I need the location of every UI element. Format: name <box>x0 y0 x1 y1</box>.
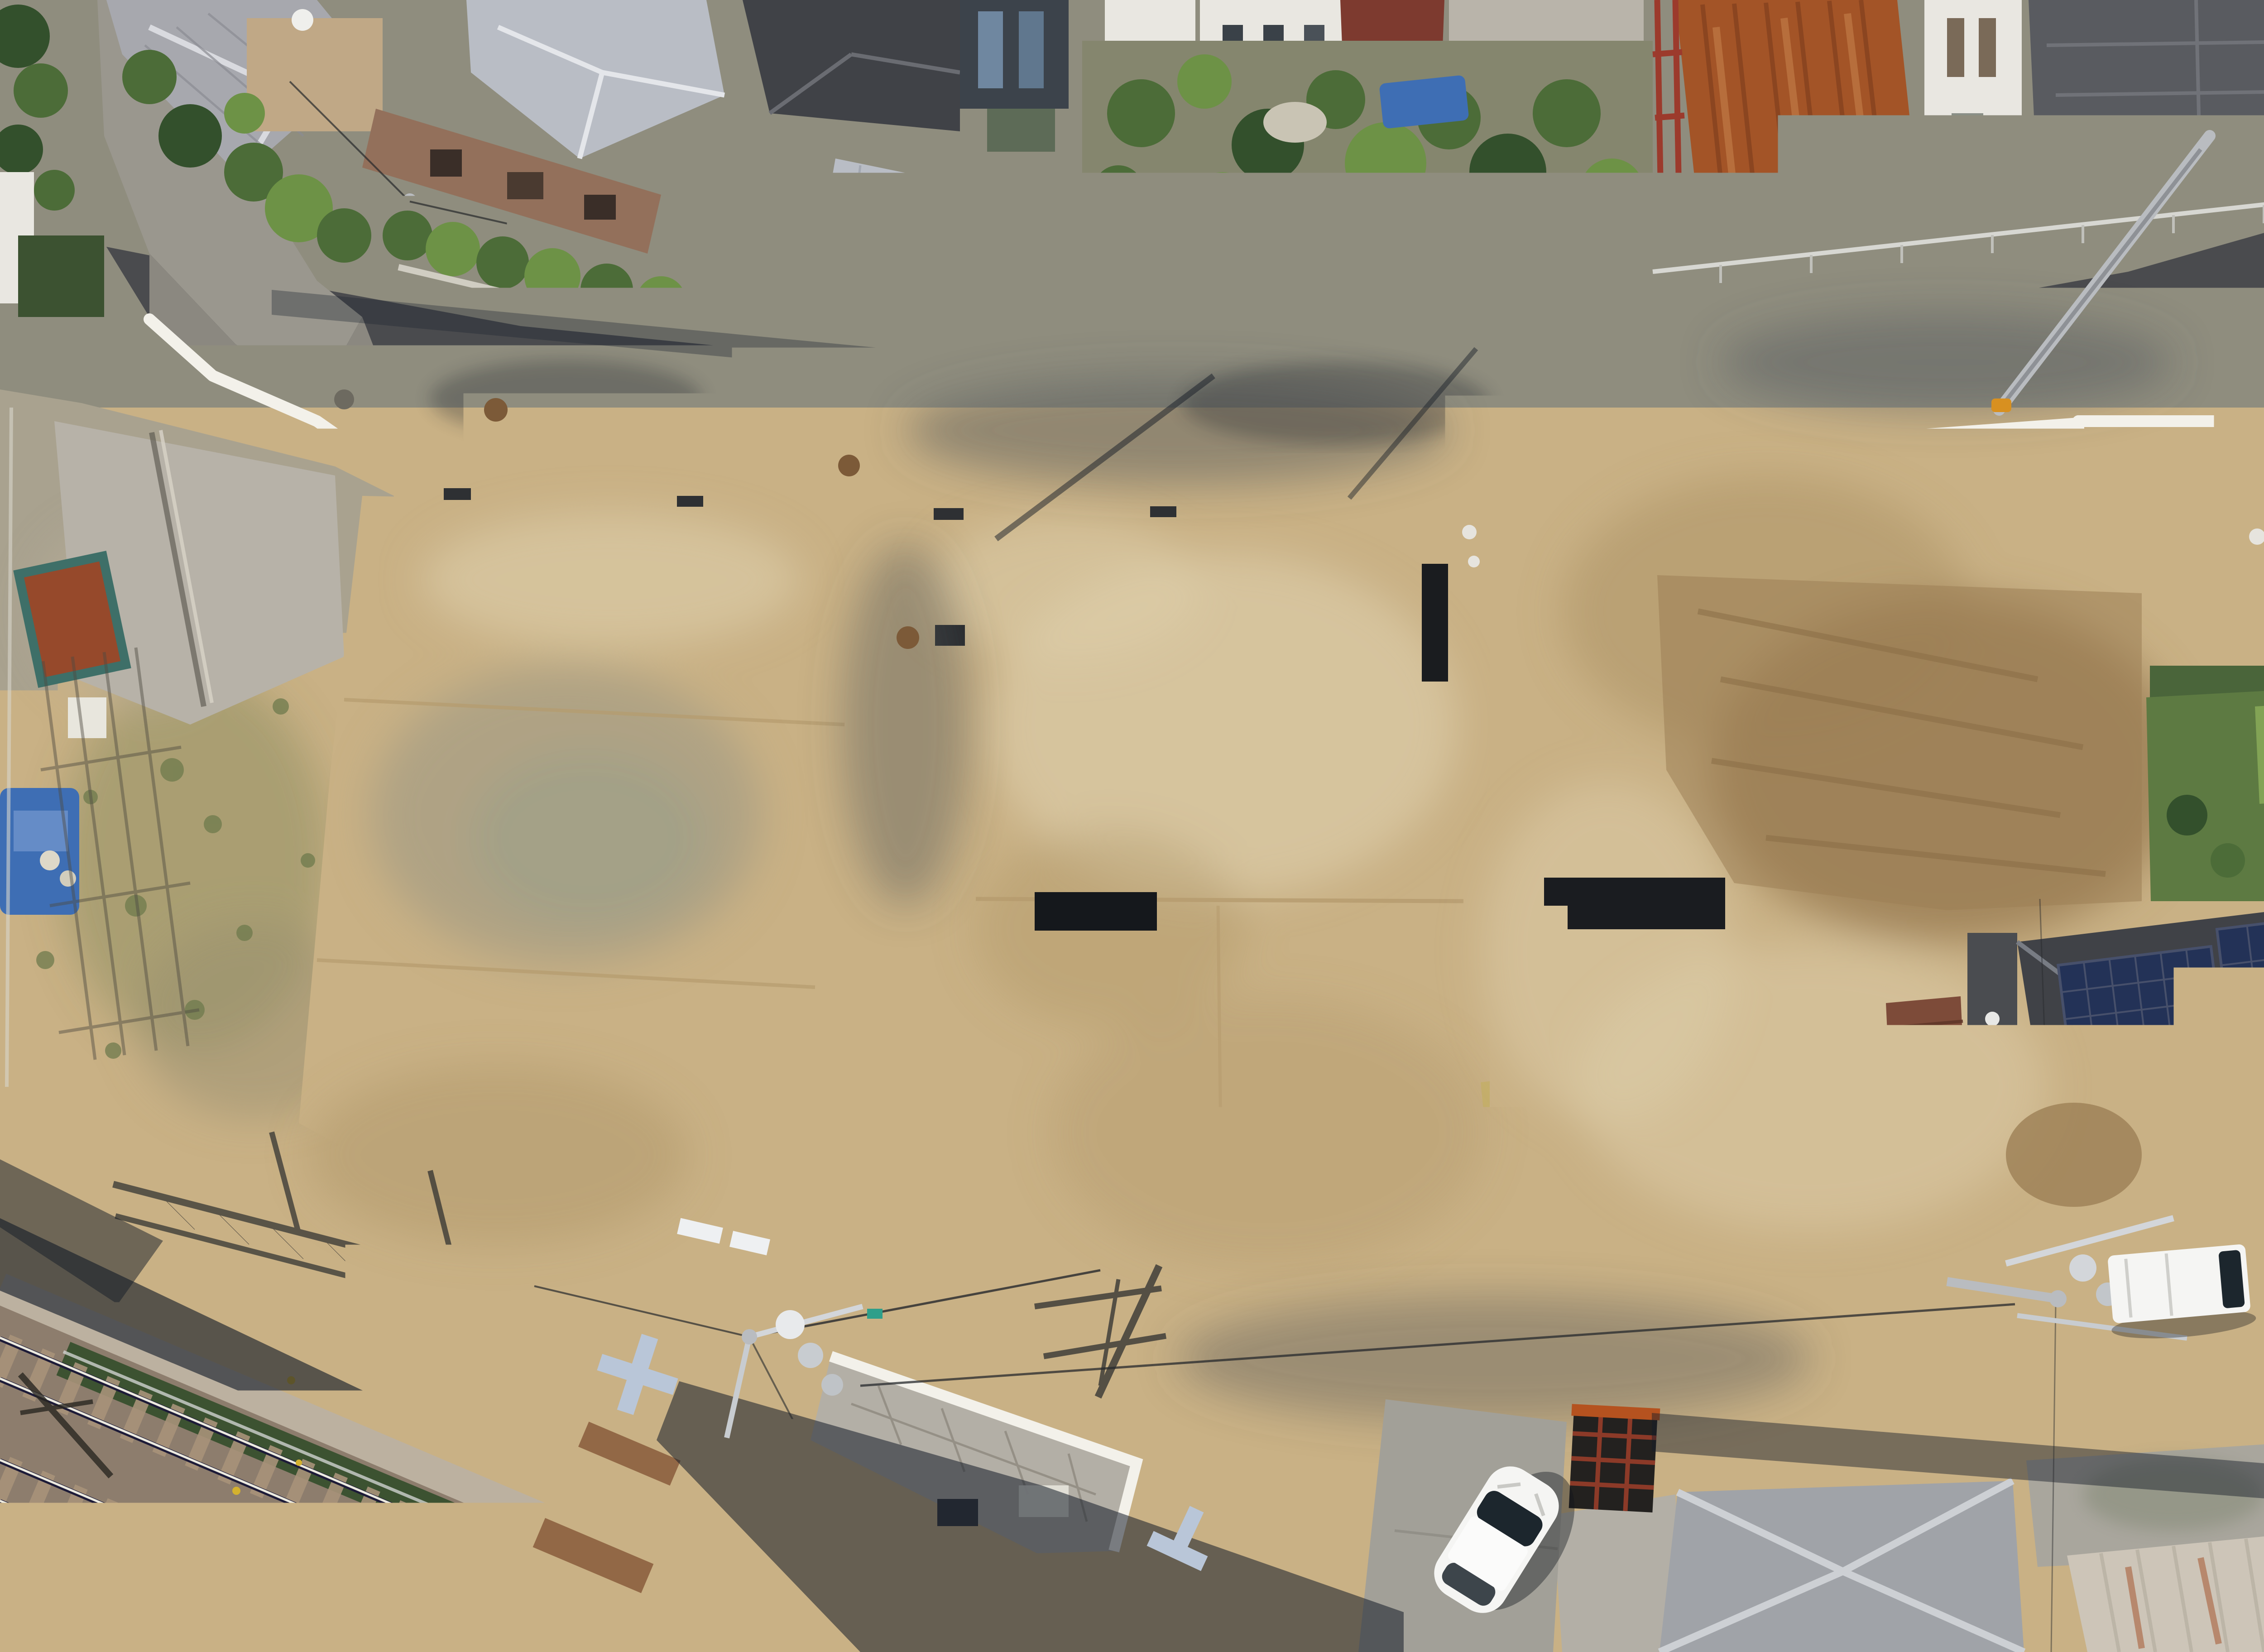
hedge-left <box>18 235 104 317</box>
window-strip <box>1979 18 1996 77</box>
green-box <box>867 1309 883 1319</box>
bush <box>2211 843 2245 878</box>
excavator-bucket <box>1541 764 1567 796</box>
foundation-trench <box>1544 878 1725 929</box>
white-house-2story <box>1924 0 2022 195</box>
bush <box>2167 795 2207 836</box>
ac-unit <box>1985 1012 2000 1026</box>
dark-opening <box>507 172 543 199</box>
solar-array <box>2058 946 2221 1046</box>
brick-roof-small <box>1886 996 1967 1148</box>
utility-pole <box>1323 307 1335 318</box>
tree-shadow <box>1182 362 1490 444</box>
white-building <box>1105 0 1195 45</box>
stone-patch <box>1263 102 1327 143</box>
white-bag <box>40 850 60 870</box>
garden-right <box>2146 679 2264 901</box>
aerial-photo <box>0 0 2264 1652</box>
ac-unit <box>1985 1148 2000 1162</box>
dark-opening <box>584 195 616 220</box>
skylight <box>978 11 1003 88</box>
japanese-garden <box>1082 41 1653 358</box>
vent-box <box>1952 113 1983 145</box>
foundation-trench <box>1422 564 1448 682</box>
blue-tarp-highlight <box>14 811 68 851</box>
red-lattice-structure <box>1567 1404 1660 1513</box>
t-mark-top-stem <box>871 344 887 387</box>
satellite-dish <box>292 9 313 31</box>
excavator-counterweight <box>1654 792 1663 802</box>
white-kei-truck <box>2105 1244 2257 1343</box>
dark-opening <box>430 149 462 177</box>
large-gray-roof <box>2029 0 2264 195</box>
window <box>2158 543 2177 582</box>
blue-tarp-garden <box>1379 75 1469 129</box>
blue-gray-roof <box>960 0 1069 109</box>
garage-roof <box>987 109 1055 152</box>
skylight <box>1019 11 1044 88</box>
pole-base-marker <box>1991 399 2011 412</box>
dirt-yard <box>247 18 383 131</box>
scene-canvas <box>0 0 2264 1652</box>
dark-walls <box>1967 933 2017 1313</box>
utility-pole-top <box>407 197 413 203</box>
t-mark-top-bar <box>850 329 908 344</box>
foundation-trench <box>1035 892 1157 931</box>
window-strip <box>1947 18 1964 77</box>
solar-array <box>2217 918 2264 1001</box>
white-sheet <box>68 697 106 738</box>
